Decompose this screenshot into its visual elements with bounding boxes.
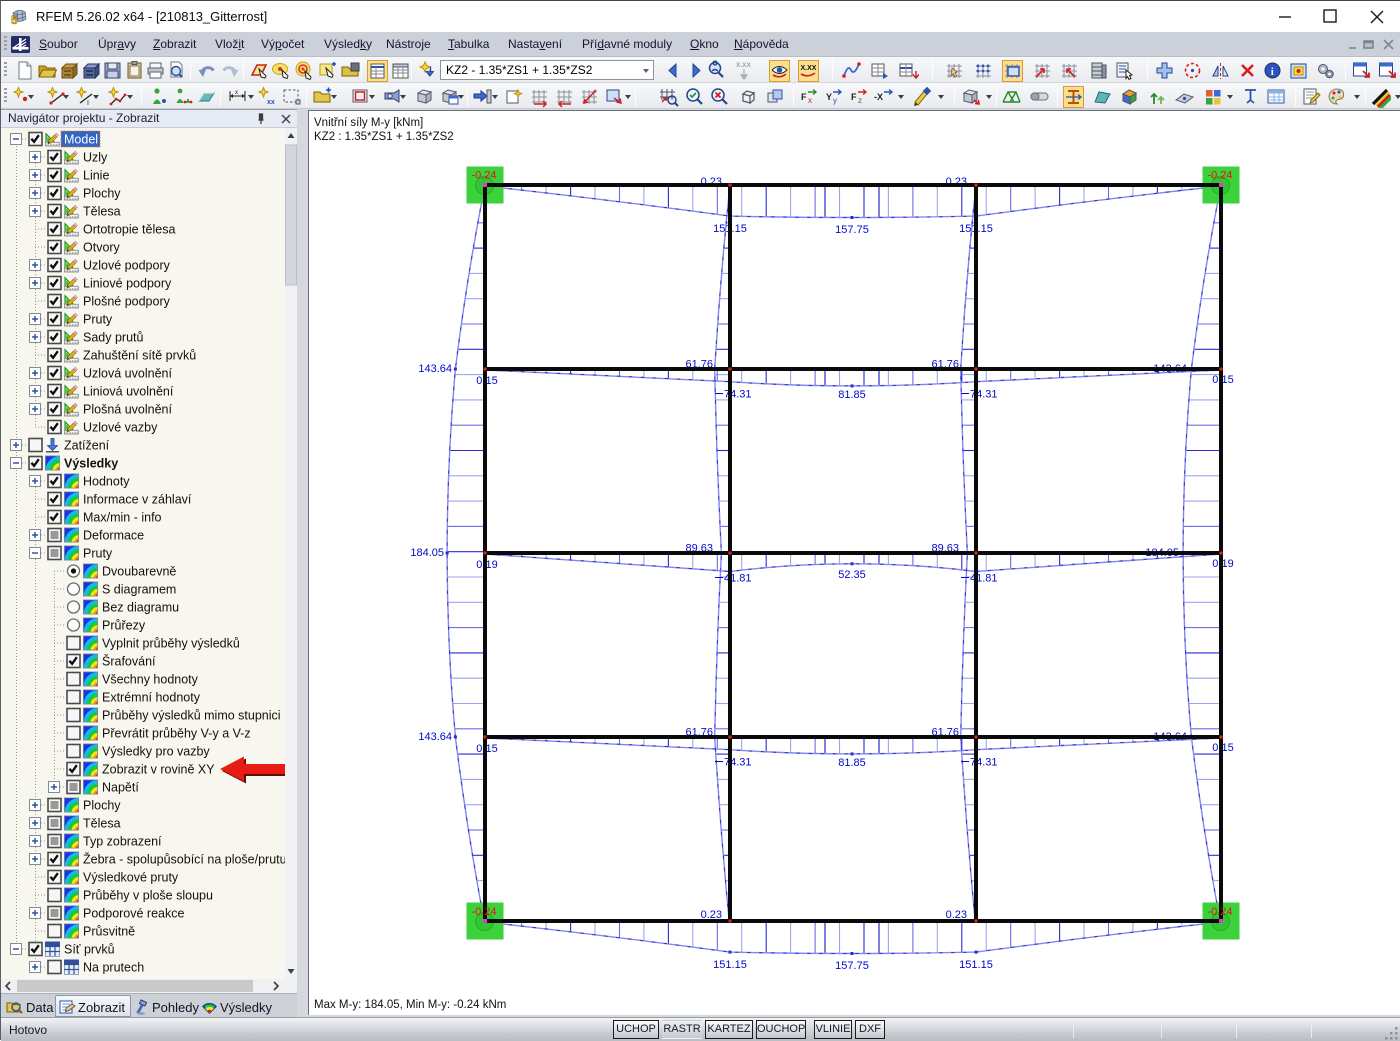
svg-text:Napětí: Napětí [102, 781, 139, 795]
svg-text:Všechny hodnoty: Všechny hodnoty [102, 673, 199, 687]
svg-text:Průběhy v ploše sloupu: Průběhy v ploše sloupu [83, 889, 213, 903]
svg-text:Plošné podpory: Plošné podpory [83, 295, 171, 309]
svg-text:Y: Y [826, 92, 832, 102]
svg-text:X.XX: X.XX [736, 62, 751, 69]
svg-text:Plochy: Plochy [83, 799, 121, 813]
svg-text:Dvoubarevně: Dvoubarevně [102, 565, 176, 579]
svg-text:Síť prvků: Síť prvků [64, 943, 115, 957]
svg-text:5: 5 [11, 13, 18, 27]
svg-text:Průsvitně: Průsvitně [83, 925, 135, 939]
svg-text:Linie: Linie [83, 169, 109, 183]
svg-text:Zatížení: Zatížení [64, 439, 110, 453]
svg-text:Vnitřní síly M-y [kNm]: Vnitřní síly M-y [kNm] [314, 117, 423, 129]
svg-text:81.85: 81.85 [838, 757, 866, 769]
svg-text:Na prutech: Na prutech [83, 961, 144, 975]
svg-text:Typ zobrazení: Typ zobrazení [83, 835, 162, 849]
svg-text:Model: Model [64, 133, 98, 147]
svg-text:157.75: 157.75 [835, 960, 869, 972]
svg-text:52.35: 52.35 [838, 569, 866, 581]
svg-text:y: y [833, 96, 837, 105]
svg-text:S diagramem: S diagramem [102, 583, 176, 597]
svg-text:x: x [235, 90, 238, 96]
svg-text:Pruty: Pruty [83, 547, 113, 561]
svg-text:81.85: 81.85 [838, 389, 866, 401]
svg-text:143.64: 143.64 [418, 363, 452, 375]
svg-text:-0.24: -0.24 [1207, 906, 1232, 918]
svg-text:F: F [851, 92, 857, 102]
svg-text:-0.24: -0.24 [1207, 170, 1232, 182]
svg-text:Uzlové podpory: Uzlové podpory [83, 259, 171, 273]
svg-text:Tělesa: Tělesa [83, 817, 121, 831]
svg-text:143.64: 143.64 [418, 731, 452, 743]
svg-text:Převrátit průběhy V-y a V-z: Převrátit průběhy V-y a V-z [102, 727, 251, 741]
svg-text:-0.24: -0.24 [471, 906, 496, 918]
svg-text:Průřezy: Průřezy [102, 619, 146, 633]
svg-text:Max/min - info: Max/min - info [83, 511, 162, 525]
svg-text:Uzlové vazby: Uzlové vazby [83, 421, 158, 435]
svg-text:Výsledkové pruty: Výsledkové pruty [83, 871, 179, 885]
svg-text:184.05: 184.05 [410, 547, 444, 559]
svg-text:Uzly: Uzly [83, 151, 108, 165]
svg-text:Bez diagramu: Bez diagramu [102, 601, 179, 615]
svg-text:Uzlová uvolnění: Uzlová uvolnění [83, 367, 172, 381]
svg-text:Šrafování: Šrafování [102, 654, 156, 669]
svg-text:-0.24: -0.24 [471, 170, 496, 182]
svg-text:-X: -X [874, 92, 883, 102]
svg-text:Liniová uvolnění: Liniová uvolnění [83, 385, 174, 399]
svg-text:Pruty: Pruty [83, 313, 113, 327]
svg-text:Sady prutů: Sady prutů [83, 331, 144, 345]
svg-text:Výsledky: Výsledky [64, 457, 118, 471]
svg-text:Vyplnit průběhy výsledků: Vyplnit průběhy výsledků [102, 637, 240, 651]
svg-text:xx: xx [267, 99, 275, 106]
svg-text:Informace v záhlaví: Informace v záhlaví [83, 493, 192, 507]
svg-text:Max M-y: 184.05, Min M-y: -0.2: Max M-y: 184.05, Min M-y: -0.24 kNm [314, 999, 506, 1011]
svg-text:i: i [1271, 66, 1274, 78]
svg-text:X.XX: X.XX [801, 65, 817, 72]
svg-text:KZ2 : 1.35*ZS1 + 1.35*ZS2: KZ2 : 1.35*ZS1 + 1.35*ZS2 [314, 131, 454, 143]
svg-text:Liniové podpory: Liniové podpory [83, 277, 172, 291]
svg-text:z: z [858, 96, 862, 105]
svg-text:Výsledky pro vazby: Výsledky pro vazby [102, 745, 210, 759]
svg-text:Otvory: Otvory [83, 241, 121, 255]
svg-text:Zahuštění sítě prvků: Zahuštění sítě prvků [83, 349, 196, 363]
svg-text:Hodnoty: Hodnoty [83, 475, 130, 489]
svg-text:Podporové reakce: Podporové reakce [83, 907, 185, 921]
svg-text:Žebra - spolupůsobící na ploše: Žebra - spolupůsobící na ploše/prutu [83, 852, 285, 867]
svg-text:Plošná uvolnění: Plošná uvolnění [83, 403, 172, 417]
svg-text:Zobrazit v rovině XY: Zobrazit v rovině XY [102, 763, 215, 777]
svg-text:Deformace: Deformace [83, 529, 144, 543]
svg-text:Extrémní hodnoty: Extrémní hodnoty [102, 691, 201, 705]
svg-text:151.15: 151.15 [959, 959, 993, 971]
svg-text:157.75: 157.75 [835, 224, 869, 236]
svg-text:Průběhy výsledků mimo stupnici: Průběhy výsledků mimo stupnici [102, 709, 281, 723]
svg-text:Tělesa: Tělesa [83, 205, 121, 219]
svg-text:Plochy: Plochy [83, 187, 121, 201]
svg-text:x: x [808, 96, 812, 105]
svg-text:I: I [87, 100, 89, 107]
svg-text:Ortotropie tělesa: Ortotropie tělesa [83, 223, 175, 237]
svg-text:151.15: 151.15 [713, 959, 747, 971]
svg-text:F: F [801, 92, 807, 102]
